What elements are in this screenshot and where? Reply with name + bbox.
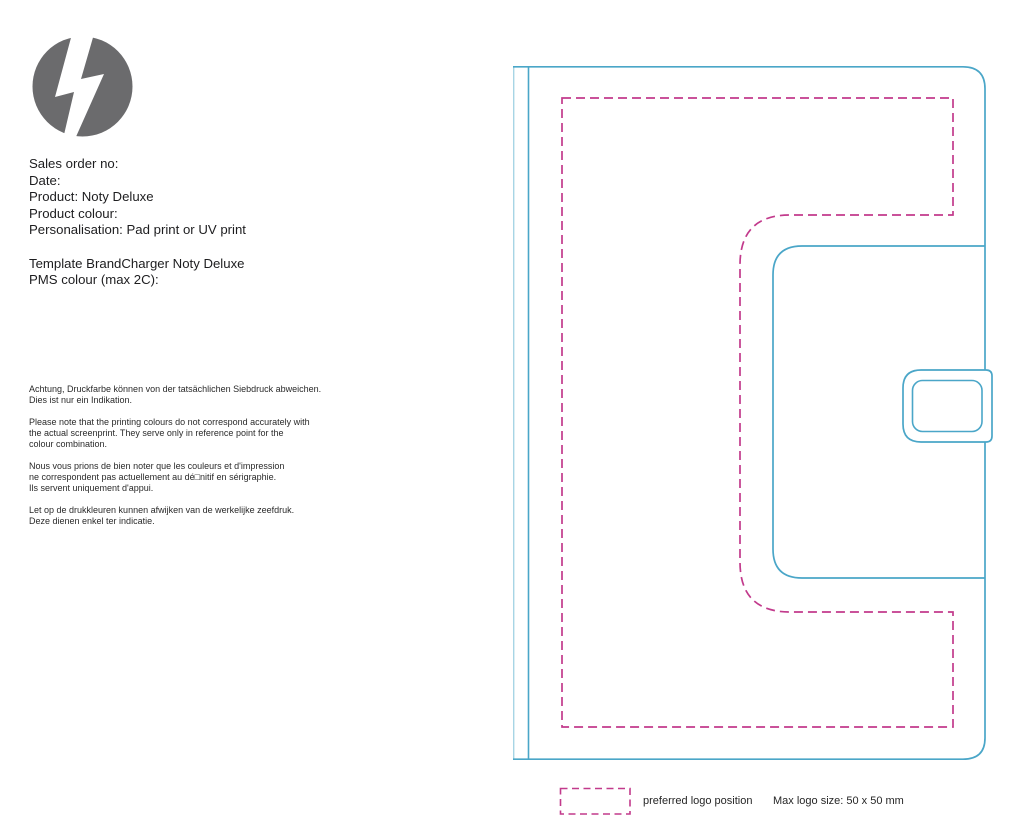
legend-max-logo-size-label: Max logo size: 50 x 50 mm: [773, 795, 904, 808]
notebook-template-drawing: [0, 0, 1024, 837]
legend-preferred-logo-position-label: preferred logo position: [643, 795, 752, 808]
preferred-logo-position-swatch: [561, 789, 631, 815]
clasp-inner: [913, 381, 983, 432]
preferred-logo-position-area: [562, 98, 953, 727]
template-page: Sales order no: Date: Product: Noty Delu…: [0, 0, 1024, 837]
